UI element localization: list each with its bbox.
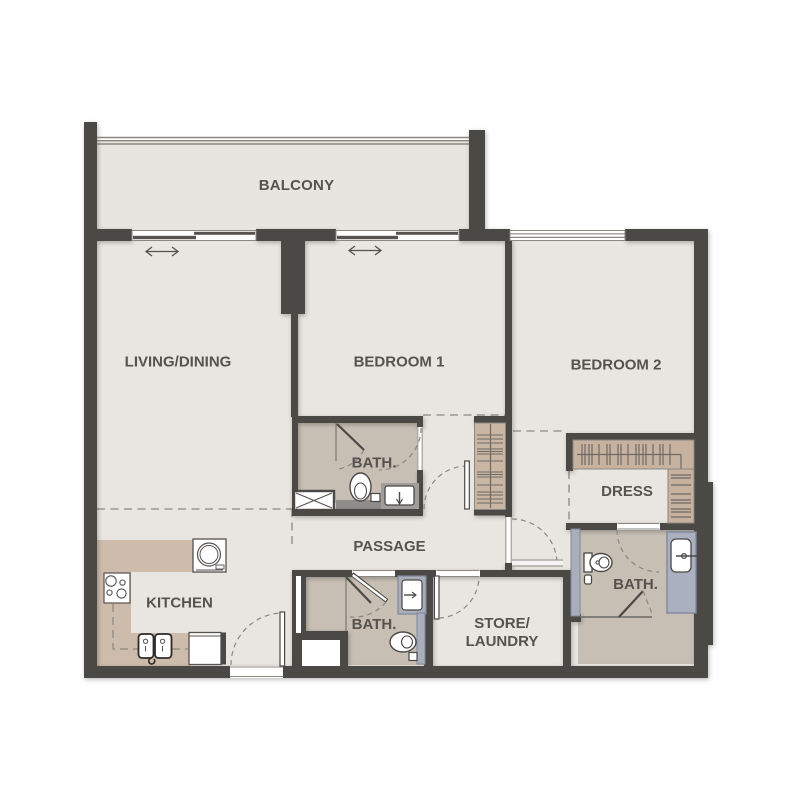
- svg-text:LIVING/DINING: LIVING/DINING: [125, 354, 232, 371]
- svg-text:DRESS: DRESS: [601, 483, 653, 500]
- svg-text:KITCHEN: KITCHEN: [146, 595, 213, 612]
- svg-text:STORE/: STORE/: [474, 615, 530, 632]
- svg-text:BATH.: BATH.: [352, 616, 397, 633]
- svg-text:PASSAGE: PASSAGE: [353, 538, 425, 555]
- svg-text:BALCONY: BALCONY: [259, 177, 335, 194]
- svg-text:BEDROOM 1: BEDROOM 1: [354, 354, 445, 371]
- svg-text:BATH.: BATH.: [613, 576, 658, 593]
- svg-text:LAUNDRY: LAUNDRY: [466, 633, 539, 650]
- svg-text:BEDROOM 2: BEDROOM 2: [571, 357, 662, 374]
- svg-text:BATH.: BATH.: [352, 455, 397, 472]
